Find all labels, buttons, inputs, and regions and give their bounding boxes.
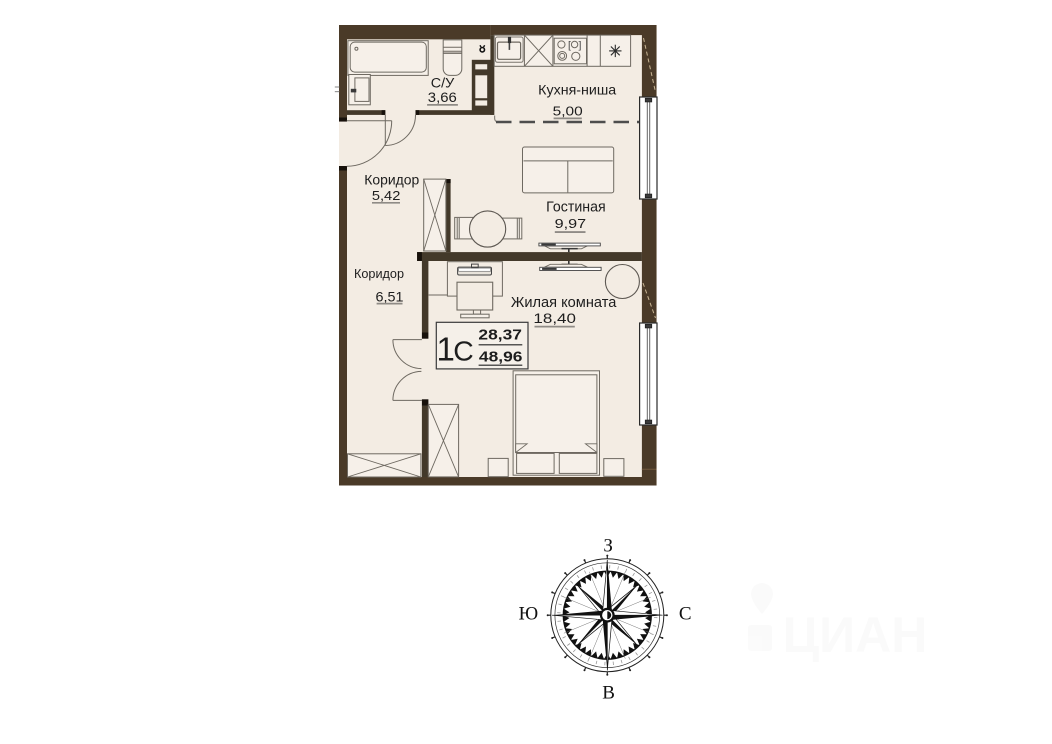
svg-text:18,40: 18,40 xyxy=(533,311,576,327)
svg-text:[: [ xyxy=(568,39,571,51)
svg-text:Гостиная: Гостиная xyxy=(546,200,606,216)
svg-text:28,37: 28,37 xyxy=(478,326,522,343)
svg-text:Ю: Ю xyxy=(519,603,539,624)
svg-text:3,66: 3,66 xyxy=(428,89,457,105)
svg-text:ЦИАН: ЦИАН xyxy=(783,607,928,663)
svg-text:5,00: 5,00 xyxy=(553,104,583,119)
svg-text:Коридор: Коридор xyxy=(364,172,419,188)
svg-text:5,42: 5,42 xyxy=(372,188,401,203)
svg-text:В: В xyxy=(602,682,615,703)
svg-text:Кухня-ниша: Кухня-ниша xyxy=(538,81,616,97)
svg-text:С: С xyxy=(453,335,474,366)
svg-text:С: С xyxy=(679,603,692,624)
svg-text:З: З xyxy=(603,536,613,557)
svg-text:]: ] xyxy=(578,39,581,51)
svg-text:6,51: 6,51 xyxy=(376,289,404,304)
svg-text:9,97: 9,97 xyxy=(555,216,587,231)
svg-text:С/У: С/У xyxy=(431,75,455,90)
svg-text:Коридор: Коридор xyxy=(354,266,404,281)
svg-text:48,96: 48,96 xyxy=(479,348,523,365)
svg-text:Жилая комната: Жилая комната xyxy=(511,295,617,311)
svg-text:1: 1 xyxy=(437,330,455,367)
